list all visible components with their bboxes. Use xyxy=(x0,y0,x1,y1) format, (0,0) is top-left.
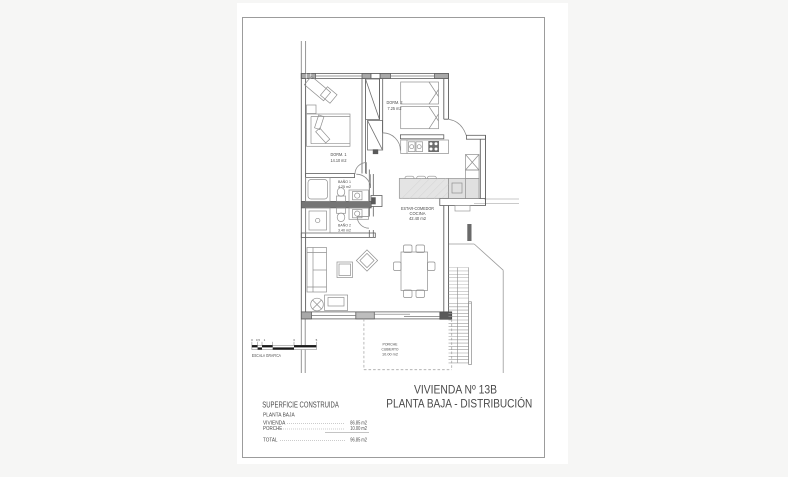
svg-text:3.40 m2: 3.40 m2 xyxy=(338,228,351,233)
svg-text:PORCHE: PORCHE xyxy=(263,426,282,432)
svg-text:DORM. 1: DORM. 1 xyxy=(331,152,348,157)
svg-text:10.00 m2: 10.00 m2 xyxy=(350,426,367,432)
svg-text:PLANTA BAJA - DISTRIBUCIÓN: PLANTA BAJA - DISTRIBUCIÓN xyxy=(386,395,532,410)
svg-text:4.25 m2: 4.25 m2 xyxy=(338,184,351,189)
svg-text:14.10 m2: 14.10 m2 xyxy=(331,158,348,163)
svg-text:SUPERFICIE CONSTRUIDA: SUPERFICIE CONSTRUIDA xyxy=(262,400,339,410)
svg-text:42.40 m2: 42.40 m2 xyxy=(409,216,427,221)
svg-text:DORM. 2: DORM. 2 xyxy=(387,100,404,105)
svg-text:VIVIENDA Nº 13B: VIVIENDA Nº 13B xyxy=(414,383,497,397)
svg-text:PLANTA BAJA: PLANTA BAJA xyxy=(263,412,295,418)
svg-text:TOTAL: TOTAL xyxy=(263,437,278,443)
svg-text:96.85 m2: 96.85 m2 xyxy=(350,437,367,443)
svg-text:ESCALA GRAFICA: ESCALA GRAFICA xyxy=(252,353,281,358)
svg-text:7.25 m2: 7.25 m2 xyxy=(388,106,403,111)
svg-text:10.00 m2: 10.00 m2 xyxy=(382,352,399,357)
svg-text:0,5: 0,5 xyxy=(256,338,261,342)
